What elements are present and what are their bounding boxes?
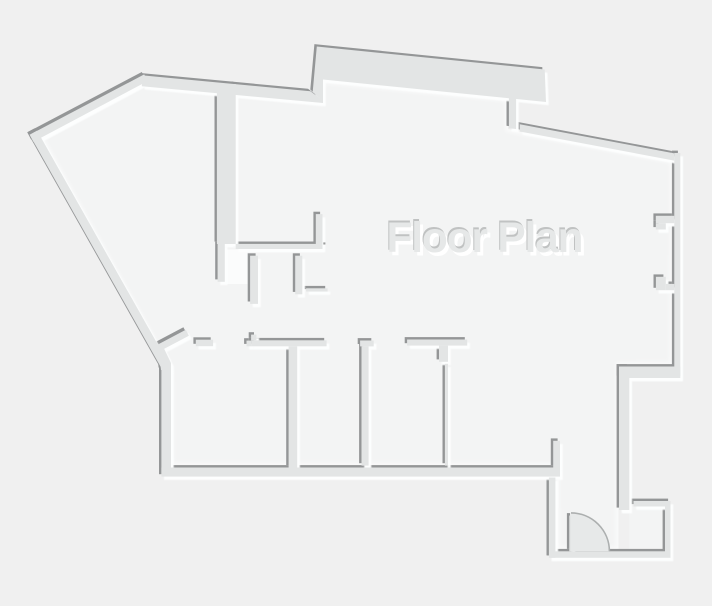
svg-text:Floor Plan: Floor Plan (387, 215, 584, 262)
